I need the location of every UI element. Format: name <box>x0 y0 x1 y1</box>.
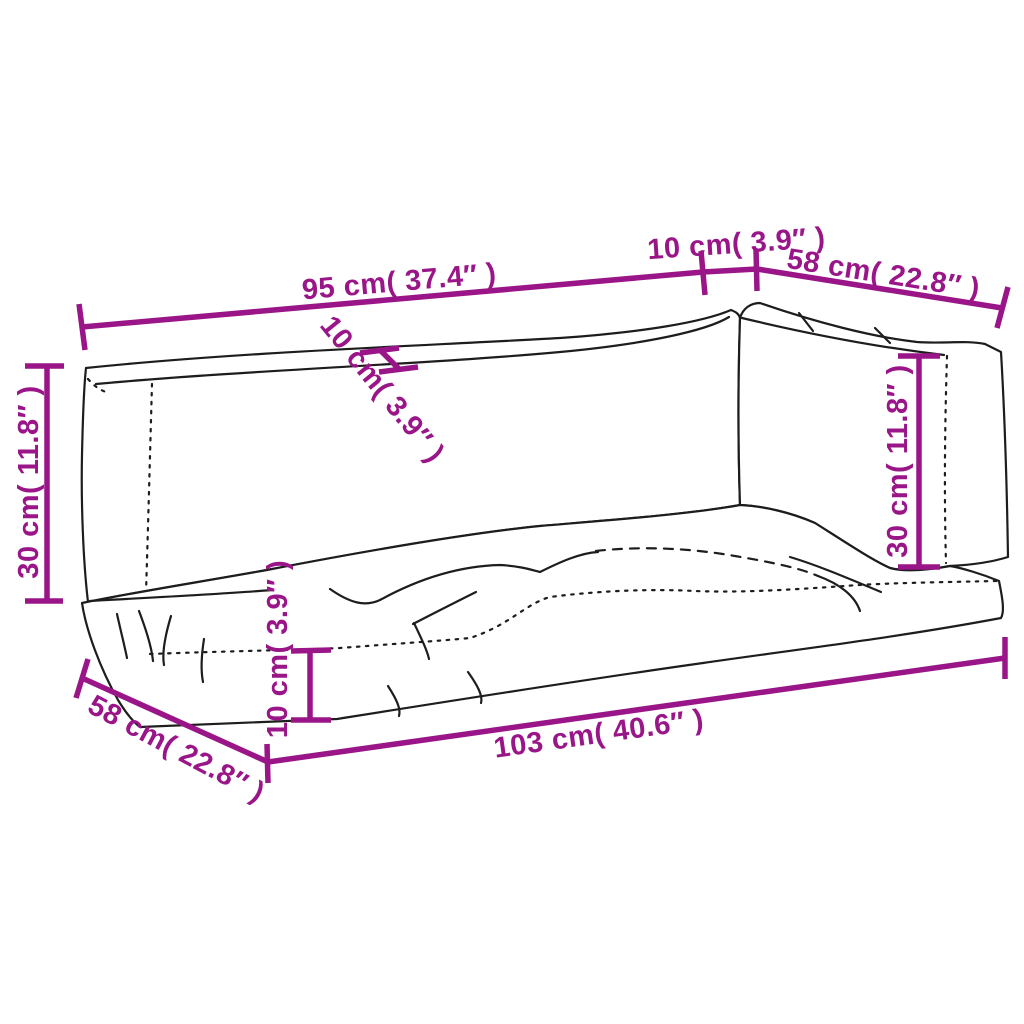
dimension-tick <box>79 304 85 350</box>
dimension-label: 58 cm( 22.8″ ) <box>785 243 983 305</box>
dimension-tick <box>291 650 331 651</box>
diagram-canvas: 95 cm( 37.4″ ) 10 cm( 3.9″ ) 58 cm( 22.8… <box>0 0 1024 1024</box>
dimension-label: 30 cm( 11.8″ ) <box>13 385 45 578</box>
dimension-label: 10 cm( 3.9″ ) <box>262 560 294 738</box>
product-dimension-diagram: 95 cm( 37.4″ ) 10 cm( 3.9″ ) 58 cm( 22.8… <box>0 0 1024 1024</box>
dim-back-height: 30 cm( 11.8″ ) <box>13 366 64 601</box>
dimension-line <box>703 269 757 272</box>
dimension-label: 30 cm( 11.8″ ) <box>882 364 914 557</box>
dimension-tick <box>267 744 268 783</box>
